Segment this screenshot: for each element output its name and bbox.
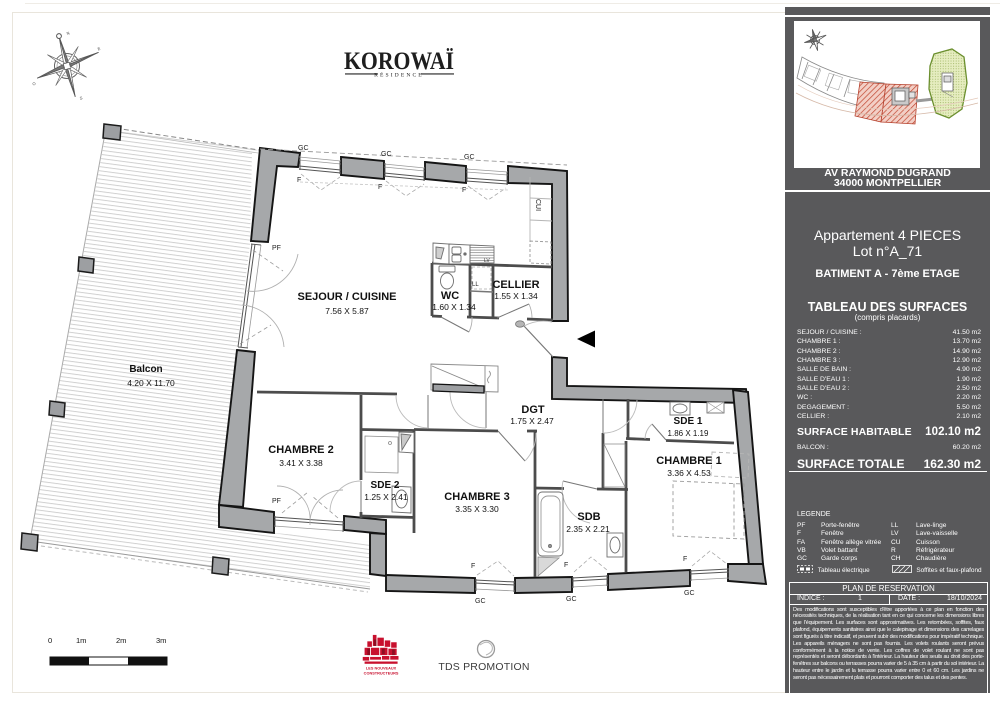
- svg-text:LL: LL: [472, 282, 479, 288]
- svg-text:RÉSIDENCE: RÉSIDENCE: [374, 71, 424, 79]
- svg-text:CUI: CUI: [534, 199, 541, 211]
- svg-text:0: 0: [48, 636, 52, 645]
- svg-text:CHAMBRE 1: CHAMBRE 1: [656, 455, 721, 467]
- svg-text:1.55 X 1.34: 1.55 X 1.34: [494, 291, 538, 301]
- svg-text:DGT: DGT: [521, 404, 545, 416]
- svg-text:SDE 1: SDE 1: [674, 416, 703, 427]
- svg-text:Balcon: Balcon: [129, 364, 162, 375]
- svg-text:SEJOUR / CUISINE: SEJOUR / CUISINE: [297, 291, 396, 303]
- svg-text:1.86 X 1.19: 1.86 X 1.19: [668, 429, 709, 438]
- svg-text:F: F: [378, 184, 382, 191]
- svg-text:CONSTRUCTEURS: CONSTRUCTEURS: [364, 671, 399, 675]
- svg-text:3.35 X 3.30: 3.35 X 3.30: [455, 504, 499, 514]
- svg-text:O: O: [32, 81, 36, 87]
- svg-text:F: F: [683, 556, 687, 563]
- svg-text:E: E: [97, 46, 101, 52]
- svg-text:7.56 X 5.87: 7.56 X 5.87: [325, 306, 369, 316]
- svg-text:F: F: [471, 563, 475, 570]
- svg-text:CELLIER: CELLIER: [492, 279, 539, 291]
- svg-text:GC: GC: [298, 145, 309, 152]
- svg-text:1m: 1m: [76, 636, 86, 645]
- svg-text:LV: LV: [484, 258, 490, 264]
- svg-text:CHAMBRE 2: CHAMBRE 2: [268, 444, 333, 456]
- svg-text:3.41 X 3.38: 3.41 X 3.38: [279, 458, 323, 468]
- svg-text:PF: PF: [272, 245, 281, 252]
- svg-text:WC: WC: [441, 290, 459, 302]
- svg-text:CHAMBRE 3: CHAMBRE 3: [444, 491, 509, 503]
- svg-text:SDE 2: SDE 2: [371, 480, 400, 491]
- svg-text:3m: 3m: [156, 636, 166, 645]
- svg-text:GC: GC: [464, 154, 475, 161]
- svg-text:4.20 X 11.70: 4.20 X 11.70: [127, 378, 175, 388]
- svg-text:3.36 X 4.53: 3.36 X 4.53: [667, 468, 711, 478]
- svg-text:F: F: [564, 562, 568, 569]
- svg-text:F: F: [297, 177, 301, 184]
- svg-text:KOROWAÏ: KOROWAÏ: [344, 48, 454, 75]
- svg-text:GC: GC: [475, 598, 486, 605]
- svg-text:PF: PF: [272, 498, 281, 505]
- svg-text:LES NOUVEAUX: LES NOUVEAUX: [366, 667, 397, 671]
- svg-text:GC: GC: [566, 596, 577, 603]
- svg-text:2m: 2m: [116, 636, 126, 645]
- svg-text:N: N: [66, 30, 70, 36]
- svg-text:TDS PROMOTION: TDS PROMOTION: [438, 661, 529, 673]
- svg-text:2.35 X 2.21: 2.35 X 2.21: [566, 524, 610, 534]
- svg-text:GC: GC: [381, 151, 392, 158]
- svg-text:S: S: [79, 95, 83, 101]
- svg-text:GC: GC: [684, 590, 695, 597]
- svg-text:1.75 X 2.47: 1.75 X 2.47: [510, 416, 554, 426]
- svg-text:F: F: [462, 187, 466, 194]
- svg-text:1.25 X 2.41: 1.25 X 2.41: [364, 492, 408, 502]
- svg-text:1.60 X 1.34: 1.60 X 1.34: [432, 302, 476, 312]
- svg-text:SDB: SDB: [577, 511, 600, 523]
